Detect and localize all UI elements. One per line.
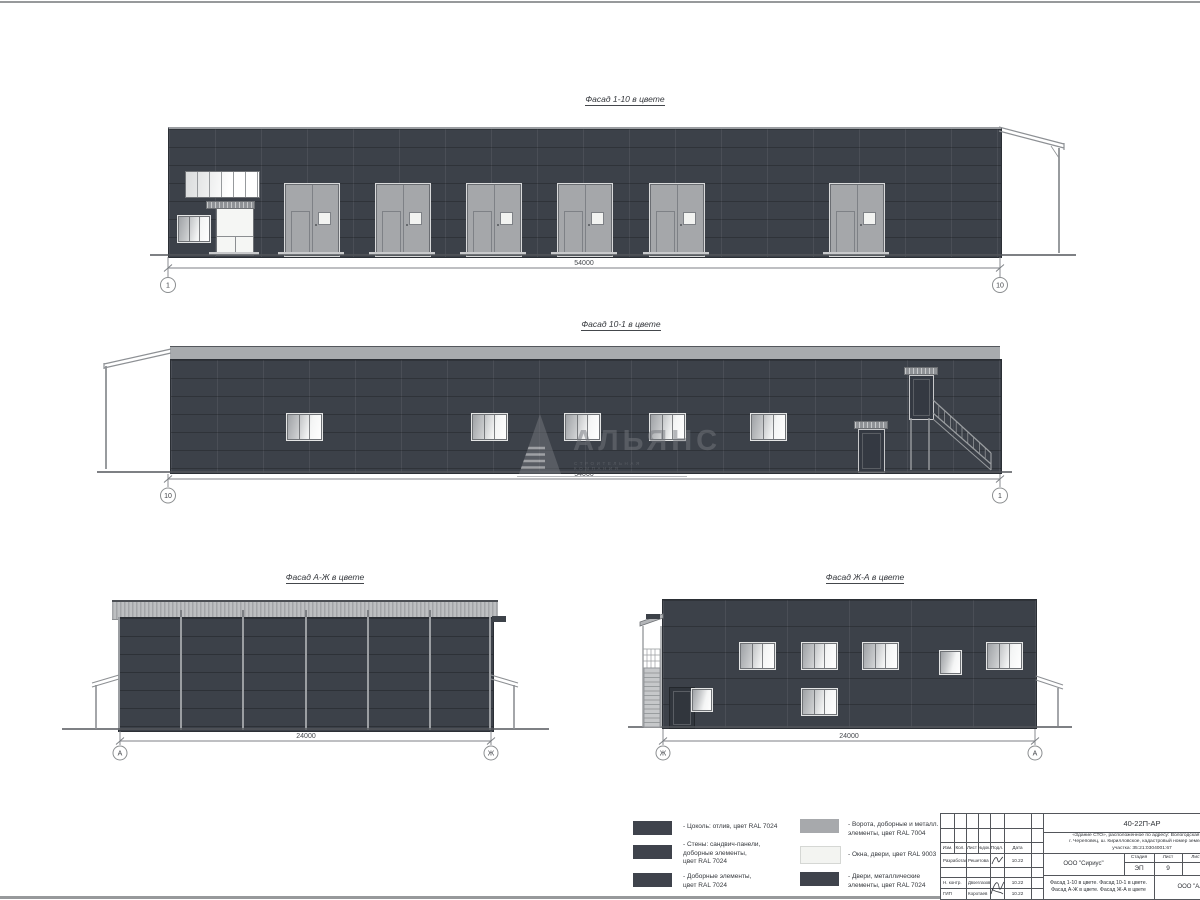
facade2-canopy	[104, 349, 171, 469]
watermark-logo-triangle	[519, 414, 561, 474]
tb-name-3: Коротаев	[967, 888, 991, 899]
legend-label-windows: - Окна, двери, цвет RAL 9003	[848, 851, 948, 860]
axis-label: 10	[164, 493, 172, 500]
legend-swatch-gates	[800, 819, 839, 833]
tb-col-kol: Кол.	[954, 842, 966, 853]
tb-line	[941, 867, 1043, 868]
company-watermark: АЛЬЯНС СТРОИТЕЛЬНАЯ КОМПАНИЯ	[517, 412, 687, 477]
facade2-stair	[911, 400, 991, 470]
legend-swatch-walls	[633, 845, 672, 859]
facade4-dim-label: 24000	[839, 733, 859, 740]
axis-labels: 1 10 10 1 А Ж Ж А	[118, 283, 1038, 758]
tb-col-data: Дата	[1004, 842, 1031, 853]
tb-line	[1031, 814, 1032, 899]
facade1-dim-label: 54000	[574, 260, 594, 267]
tb-sheet-label: Лист	[1154, 853, 1182, 862]
tb-role-3: ГИП	[942, 888, 967, 899]
axis-label: 10	[996, 283, 1004, 290]
axis-bubbles	[113, 278, 1042, 761]
facade3-canopies	[92, 675, 518, 729]
legend-label-gates: - Ворота, доборные и металл. элементы, ц…	[848, 821, 948, 838]
tb-doc-number: 40-22П-АР	[1043, 814, 1200, 832]
watermark-subtitle: СТРОИТЕЛЬНАЯ КОМПАНИЯ	[574, 461, 687, 471]
axis-label: 1	[998, 493, 1002, 500]
tb-stage-label: Стадия	[1124, 853, 1154, 862]
axis-label: Ж	[488, 751, 495, 758]
signature-squiggle	[991, 854, 1004, 866]
axis-label: А	[118, 751, 123, 758]
facade4-canopy	[1036, 676, 1063, 726]
tb-col-izm: Изм.	[941, 842, 954, 853]
tb-company: ООО "Сириус"	[1043, 853, 1124, 875]
title-block: Изм. Кол. Лист №док. Подл. Дата Разработ…	[940, 813, 1200, 900]
tb-date-2: 10.22	[1004, 877, 1031, 888]
axis-label: 1	[166, 283, 170, 290]
ground-lines	[62, 255, 1076, 729]
axis-label: Ж	[660, 751, 667, 758]
legend-swatch-plinth	[633, 821, 672, 835]
tb-name-2: Двоеглазов	[967, 877, 991, 888]
tb-name-1: Решетова	[967, 853, 991, 867]
watermark-name: АЛЬЯНС	[573, 426, 721, 456]
tb-sheets-label: Листов	[1182, 853, 1200, 862]
tb-sheet-title-line2: Фасад А-Ж в цвете. Фасад Ж-А в цвете	[1051, 887, 1146, 894]
tb-role-2: Н. контр.	[942, 877, 967, 888]
legend-label-doors: - Двери, металлические элементы, цвет RA…	[848, 873, 948, 890]
tb-col-podl: Подл.	[990, 842, 1004, 853]
legend-swatch-windows	[800, 846, 841, 864]
legend-swatch-trim	[633, 873, 672, 887]
dimension-labels: 54000 54000 24000 24000	[296, 260, 859, 740]
tb-stage-value: ЭП	[1124, 862, 1154, 875]
tb-line	[941, 828, 1043, 829]
tb-date-1: 10.22	[1004, 853, 1031, 867]
tb-sheet-value: 9	[1154, 862, 1182, 875]
dimension-lines	[116, 257, 1039, 745]
tb-sheet-title-line1: Фасад 1-10 в цвете. Фасад 10-1 в цвете.	[1050, 880, 1147, 887]
tb-sheet-title: Фасад 1-10 в цвете. Фасад 10-1 в цвете. …	[1043, 875, 1154, 899]
legend-label-walls: - Стены: сандвич-панели, доборные элемен…	[683, 841, 793, 867]
tb-col-list: Лист	[966, 842, 978, 853]
signature-squiggle	[990, 877, 1005, 898]
facade1-canopy	[999, 127, 1064, 253]
tb-project-description: «Здание СТО», расположенное по адресу: В…	[1043, 833, 1200, 853]
tb-role-1: Разработал	[942, 853, 967, 867]
drawing-sheet: Фасад 1-10 в цвете Фасад 10-1 в цвете Фа…	[0, 0, 1200, 900]
tb-project-line3: участка: 35:21:0304001:67	[1043, 846, 1200, 852]
legend-label-plinth: - Цоколь: отлив, цвет RAL 7024	[683, 823, 793, 832]
legend-swatch-doors	[800, 872, 839, 886]
facade4-stair	[640, 614, 663, 727]
tb-date-3: 10.22	[1004, 888, 1031, 899]
axis-label: А	[1033, 751, 1038, 758]
legend-label-trim: - Доборные элементы, цвет RAL 7024	[683, 873, 793, 890]
tb-contractor: ООО "Альянс"	[1154, 875, 1200, 899]
tb-col-ndok: №док.	[978, 842, 990, 853]
facade3-dim-label: 24000	[296, 733, 316, 740]
